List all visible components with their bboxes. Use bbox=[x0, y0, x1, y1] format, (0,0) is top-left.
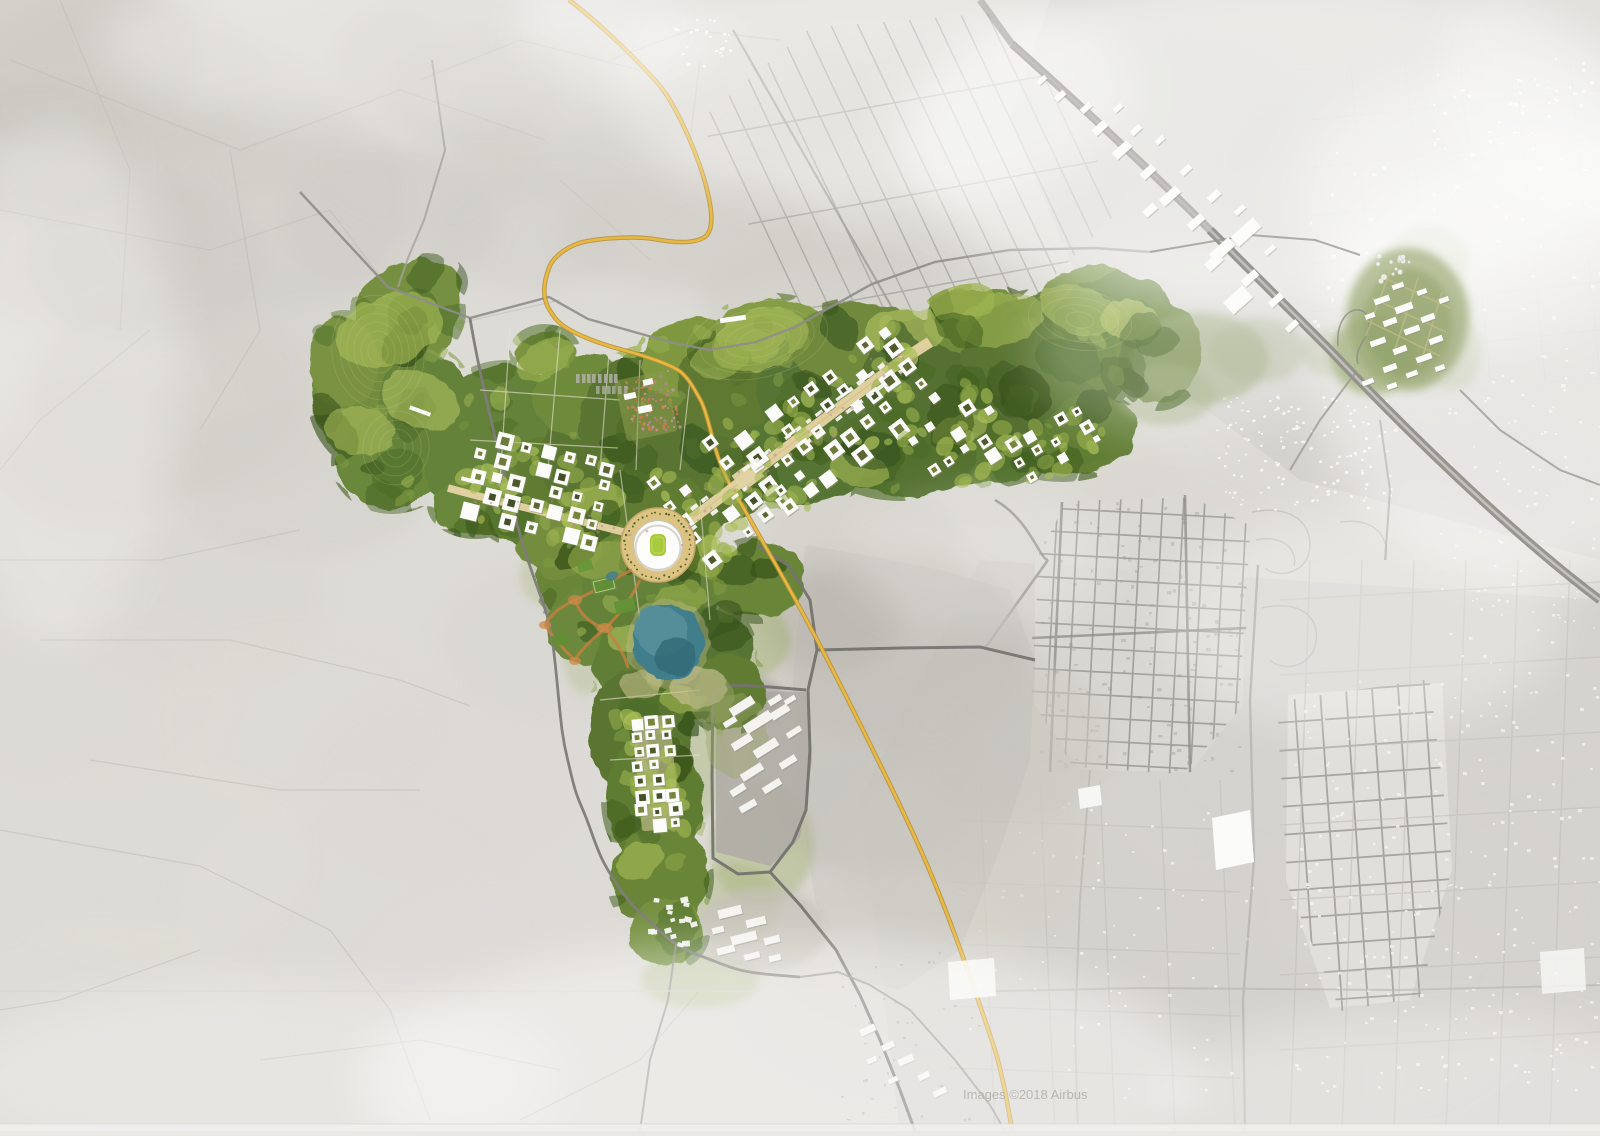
svg-text:Images ©2018 Airbus: Images ©2018 Airbus bbox=[963, 1087, 1088, 1102]
